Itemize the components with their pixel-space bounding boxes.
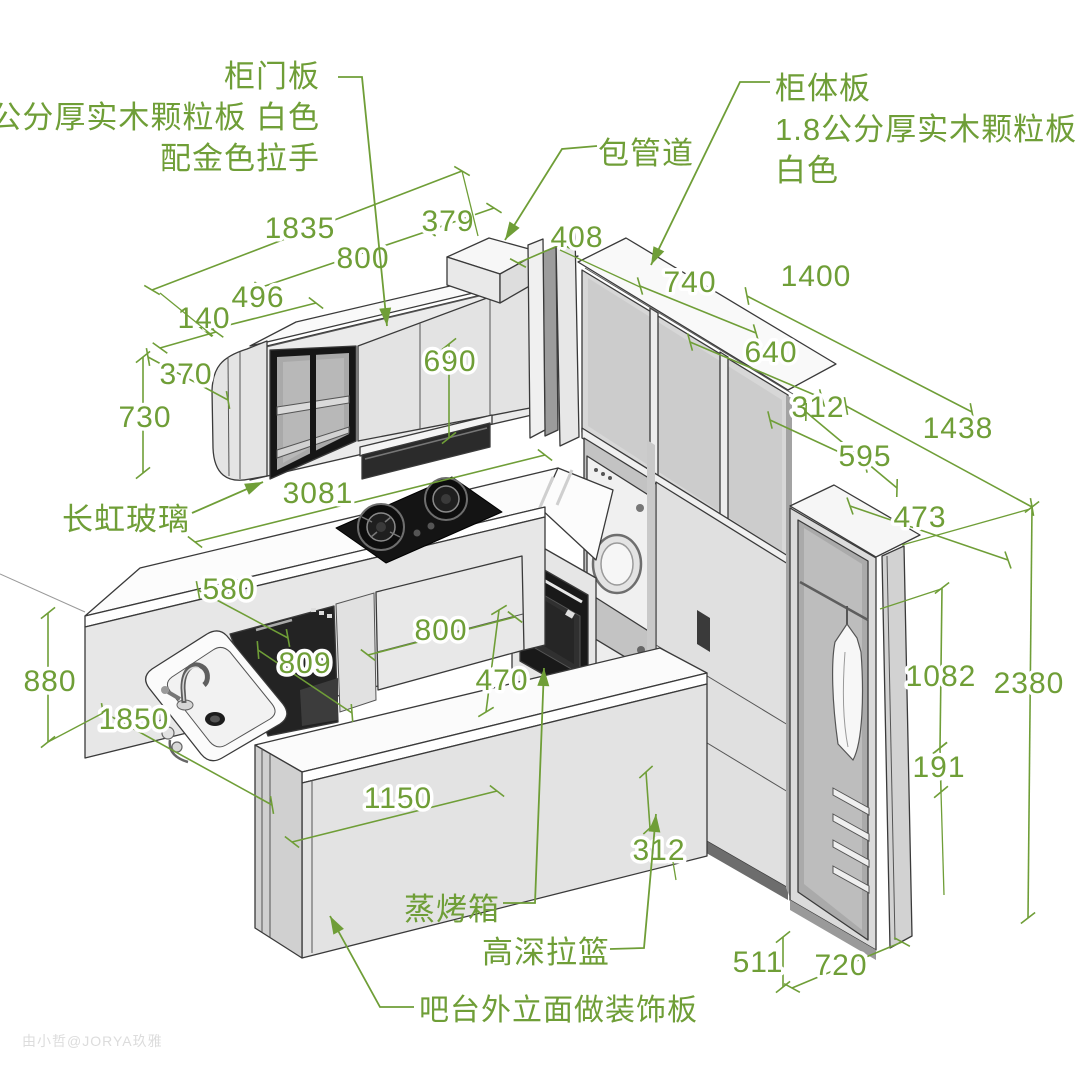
note-door-panel-line1: 柜门板 [0, 56, 320, 97]
dim-corner-gap: 408 [550, 221, 603, 254]
dim-right-upper-total: 1400 [781, 260, 852, 293]
dim-upper-cabinet-height: 730 [118, 401, 171, 434]
dim-base-drawer-width: 800 [414, 614, 467, 647]
dim-wardrobe-top-depth: 595 [838, 440, 891, 473]
dim-wardrobe-front-width: 473 [893, 501, 946, 534]
note-pipe-duct-label: 包管道 [598, 133, 694, 174]
note-pullout-basket: 高深拉篮 [482, 932, 610, 973]
wardrobe-cabinet [790, 485, 920, 960]
dim-base-run-length: 1850 [99, 703, 170, 736]
note-reeded-glass-label: 长虹玻璃 [62, 499, 190, 540]
dim-base-niche-width: 312 [632, 834, 685, 867]
note-steam-oven-label: 蒸烤箱 [404, 889, 500, 930]
dim-counter-run-length: 3081 [283, 477, 354, 510]
dim-plinth-height: 511 [733, 946, 784, 979]
note-cabinet-body-line2: 1.8公分厚实木颗粒板 [775, 109, 1077, 150]
dim-corner-clearance: 470 [475, 664, 528, 697]
note-bar-panel: 吧台外立面做装饰板 [419, 990, 698, 1031]
note-cabinet-body-line3: 白色 [775, 150, 1077, 191]
note-pullout-basket-label: 高深拉篮 [482, 932, 610, 973]
note-cabinet-body-line1: 柜体板 [775, 68, 1077, 109]
dim-right-run-total: 1438 [923, 412, 994, 445]
note-door-panel-line3: 配金色拉手 [0, 138, 320, 179]
dim-end-cabinet-width: 140 [177, 302, 230, 335]
dim-total-height: 2380 [994, 667, 1065, 700]
note-reeded-glass: 长虹玻璃 [62, 499, 190, 540]
dim-upper-cabinet-depth: 370 [159, 358, 212, 391]
dim-drawer-gap: 191 [912, 751, 965, 784]
dim-pipe-box-width: 379 [421, 205, 474, 238]
dim-upper-run-total: 1835 [265, 212, 336, 245]
dim-right-section3: 312 [791, 391, 844, 424]
watermark: 由小哲@JORYA玖雅 [22, 1031, 163, 1051]
note-bar-panel-label: 吧台外立面做装饰板 [419, 990, 698, 1031]
corner-door-panels [528, 232, 579, 446]
note-pipe-duct: 包管道 [598, 133, 694, 174]
note-door-panel-line2: 2公分厚实木颗粒板 白色 [0, 97, 320, 138]
dim-wardrobe-width: 720 [814, 949, 867, 982]
kitchen-design-diagram: 1835800379496140370730690408740140064031… [0, 0, 1080, 1080]
note-door-panel: 柜门板 2公分厚实木颗粒板 白色 配金色拉手 [0, 56, 320, 179]
dim-bar-height: 880 [23, 665, 76, 698]
dim-door-height: 690 [423, 345, 476, 378]
dim-bar-length: 1150 [364, 782, 433, 815]
dim-counter-depth: 580 [202, 573, 255, 606]
dim-dishwasher-width: 809 [278, 647, 331, 680]
dim-right-section1: 740 [663, 266, 716, 299]
note-steam-oven: 蒸烤箱 [404, 889, 500, 930]
dim-hanging-height: 1082 [906, 660, 977, 693]
dim-right-section2: 640 [744, 336, 797, 369]
dim-open-shelf-width: 496 [231, 281, 284, 314]
note-cabinet-body: 柜体板 1.8公分厚实木颗粒板 白色 [775, 68, 1077, 191]
